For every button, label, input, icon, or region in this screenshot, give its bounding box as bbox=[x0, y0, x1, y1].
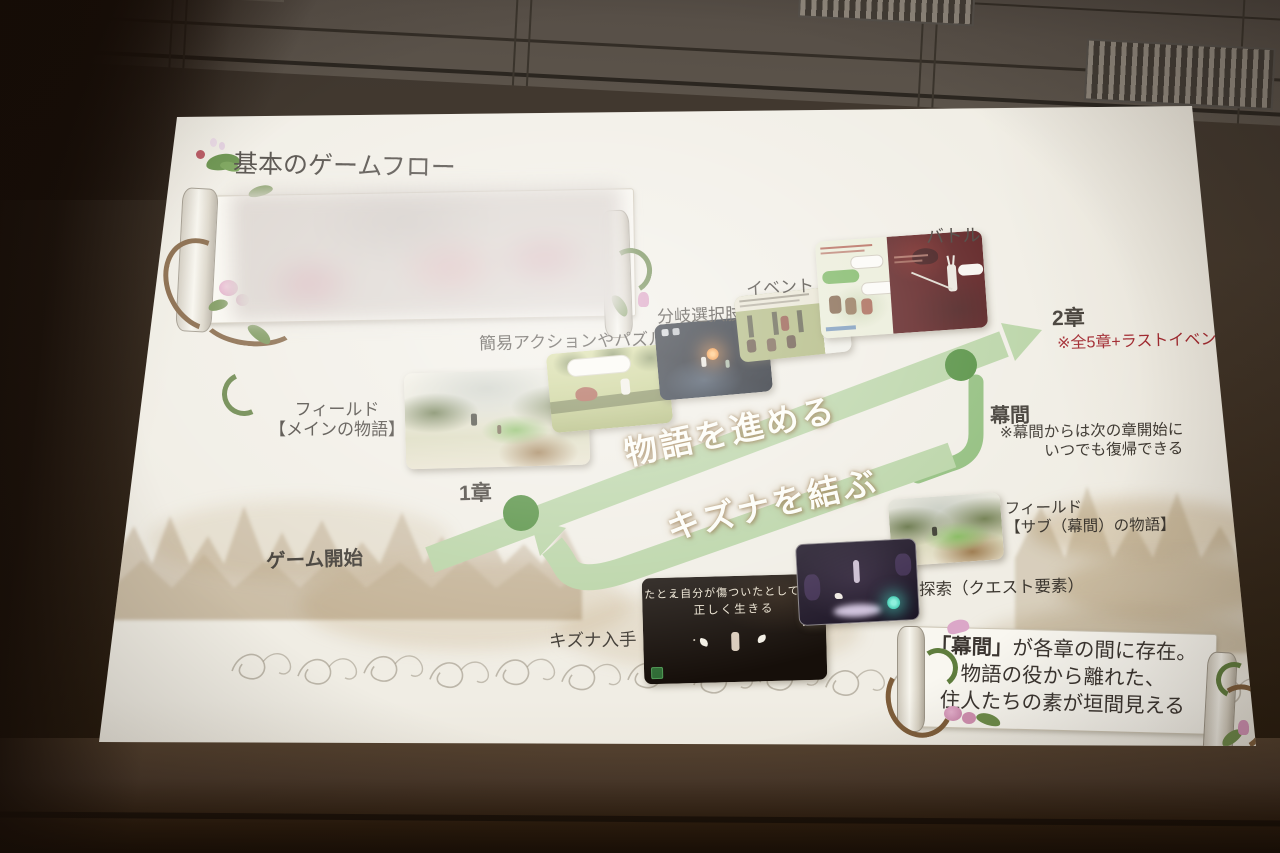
pillar bbox=[747, 315, 754, 337]
tulip-icon bbox=[638, 292, 649, 307]
game-start-label: ゲーム開始 bbox=[266, 541, 364, 573]
field-sub-label: フィールド 【サブ（幕間）の物語】 bbox=[1005, 497, 1176, 538]
explore-label: 探索（クエスト要素） bbox=[919, 572, 1085, 600]
character-sprite bbox=[829, 295, 842, 314]
character-sprite bbox=[746, 339, 756, 353]
character-sprite bbox=[845, 297, 857, 315]
fox-sprite bbox=[835, 593, 843, 599]
sparkle bbox=[672, 596, 674, 598]
tulip-icon bbox=[1238, 720, 1249, 735]
photo-of-projected-slide: 物語を進める キズナを結ぶ 基本のゲームフロー bbox=[0, 0, 1280, 853]
pillar bbox=[797, 310, 804, 332]
light-pool bbox=[833, 603, 882, 618]
green-speech-bubble bbox=[822, 269, 860, 285]
slide-title: 基本のゲームフロー bbox=[233, 144, 456, 184]
ui-icon bbox=[672, 328, 680, 336]
battle-label: バトル bbox=[926, 221, 981, 249]
ui-icon bbox=[651, 667, 663, 679]
speech-bubble bbox=[958, 263, 984, 276]
projection-screen-slide: 物語を進める キズナを結ぶ 基本のゲームフロー bbox=[0, 0, 1280, 853]
chapter1-label: 1章 bbox=[459, 477, 492, 508]
tall-figure-sprite bbox=[853, 560, 860, 583]
cave-rock bbox=[804, 574, 821, 601]
branch-choice-label: 分岐選択肢 bbox=[657, 300, 743, 328]
character-sprite bbox=[725, 360, 730, 368]
cave-rock bbox=[895, 553, 912, 576]
speech-bubble bbox=[850, 254, 884, 269]
character-sprite bbox=[780, 315, 790, 331]
character-sprite bbox=[731, 632, 739, 651]
butterfly-sprite bbox=[756, 634, 767, 643]
pillar bbox=[772, 312, 779, 335]
field-character bbox=[497, 425, 501, 434]
chapter1-node bbox=[503, 495, 539, 531]
field-character bbox=[932, 527, 938, 536]
chapter2-node bbox=[945, 349, 977, 381]
lantern-glow bbox=[706, 348, 719, 361]
screenshot-explore bbox=[795, 538, 920, 626]
redacted-blurred-content bbox=[231, 186, 623, 322]
character-sprite bbox=[786, 335, 796, 349]
rose-icon bbox=[944, 706, 962, 721]
interlude-note: ※幕間からは次の章開始に いつでも復帰できる bbox=[1000, 420, 1184, 461]
kizuna-label: キズナ入手 bbox=[549, 626, 637, 653]
ledge bbox=[550, 388, 672, 415]
field-main-label: フィールド 【メインの物語】 bbox=[268, 400, 406, 440]
field-character bbox=[471, 414, 477, 426]
event-label: イベント bbox=[745, 271, 814, 300]
ui-icon bbox=[661, 329, 669, 337]
screenshot-action-puzzle bbox=[546, 344, 673, 433]
butterfly-sprite bbox=[699, 638, 710, 647]
sparkle bbox=[693, 639, 695, 641]
character-sprite bbox=[701, 357, 707, 367]
speech-bubble bbox=[566, 354, 631, 378]
glowing-portal bbox=[887, 596, 901, 610]
character-sprite bbox=[861, 298, 873, 315]
character-sprite bbox=[766, 338, 776, 352]
rose-icon bbox=[962, 712, 976, 724]
chapter2-note: ※全5章+ラストイベント bbox=[1057, 325, 1233, 354]
action-puzzle-label: 簡易アクションやパズル bbox=[479, 325, 666, 355]
character-sprite bbox=[620, 378, 630, 395]
